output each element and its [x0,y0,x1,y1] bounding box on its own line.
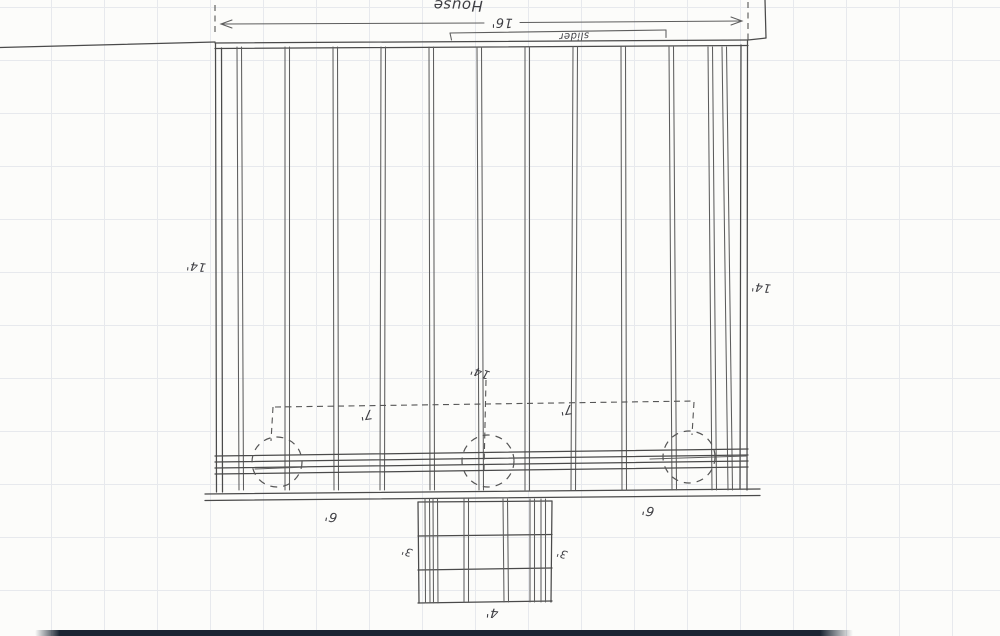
rim-joist-left [216,44,223,492]
label-slider: slider [558,29,589,41]
center-post-dashed-line [484,380,486,470]
label-stair-depth-left-3ft: 3' [400,544,414,560]
beam-lines [215,449,748,474]
deck-framing-plan-drawing: House 16' slider 14' 14' 14' 7' 7' 6' 6'… [0,0,1000,636]
label-stair-depth-right-3ft: 3' [555,546,569,562]
label-overall-width-16ft: 16' [491,14,513,29]
label-span-left-7ft: 7' [359,406,374,423]
dimension-line-16ft [221,17,742,28]
slider-bracket [450,30,666,40]
post-circle-center [462,435,514,487]
label-house: House [433,0,483,15]
desk-edge-bar [35,630,853,636]
label-offset-left-6ft: 6' [323,507,339,524]
deck-bottom-edge [205,489,760,501]
label-span-right-7ft: 7' [559,401,574,418]
rim-joist-right [740,41,748,490]
label-depth-left-14ft: 14' [185,258,206,274]
screenshot-root: House 16' slider 14' 14' 14' 7' 7' 6' 6'… [0,0,1000,636]
label-depth-center-14ft: 14' [468,363,491,382]
label-offset-right-6ft: 6' [640,501,656,518]
stair-structure [418,499,552,603]
label-depth-right-14ft: 14' [750,279,771,295]
label-stair-width-4ft: 4' [485,604,499,620]
